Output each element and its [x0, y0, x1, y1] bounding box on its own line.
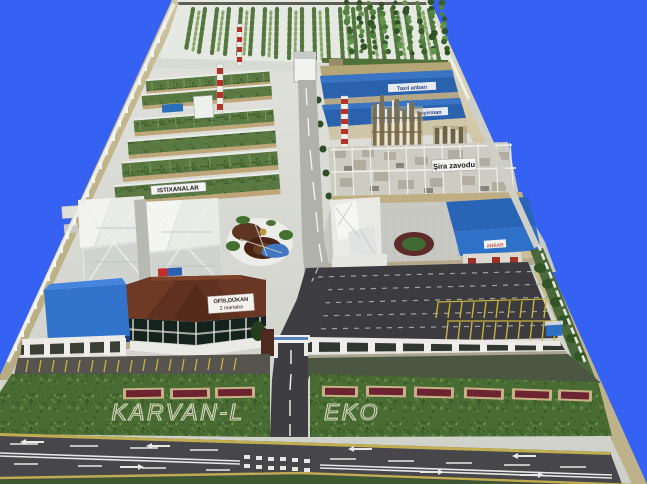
svg-text:EKO: EKO [324, 399, 380, 425]
svg-text:ANBAR: ANBAR [486, 242, 504, 249]
svg-text:KARVAN-L: KARVAN-L [111, 399, 244, 425]
